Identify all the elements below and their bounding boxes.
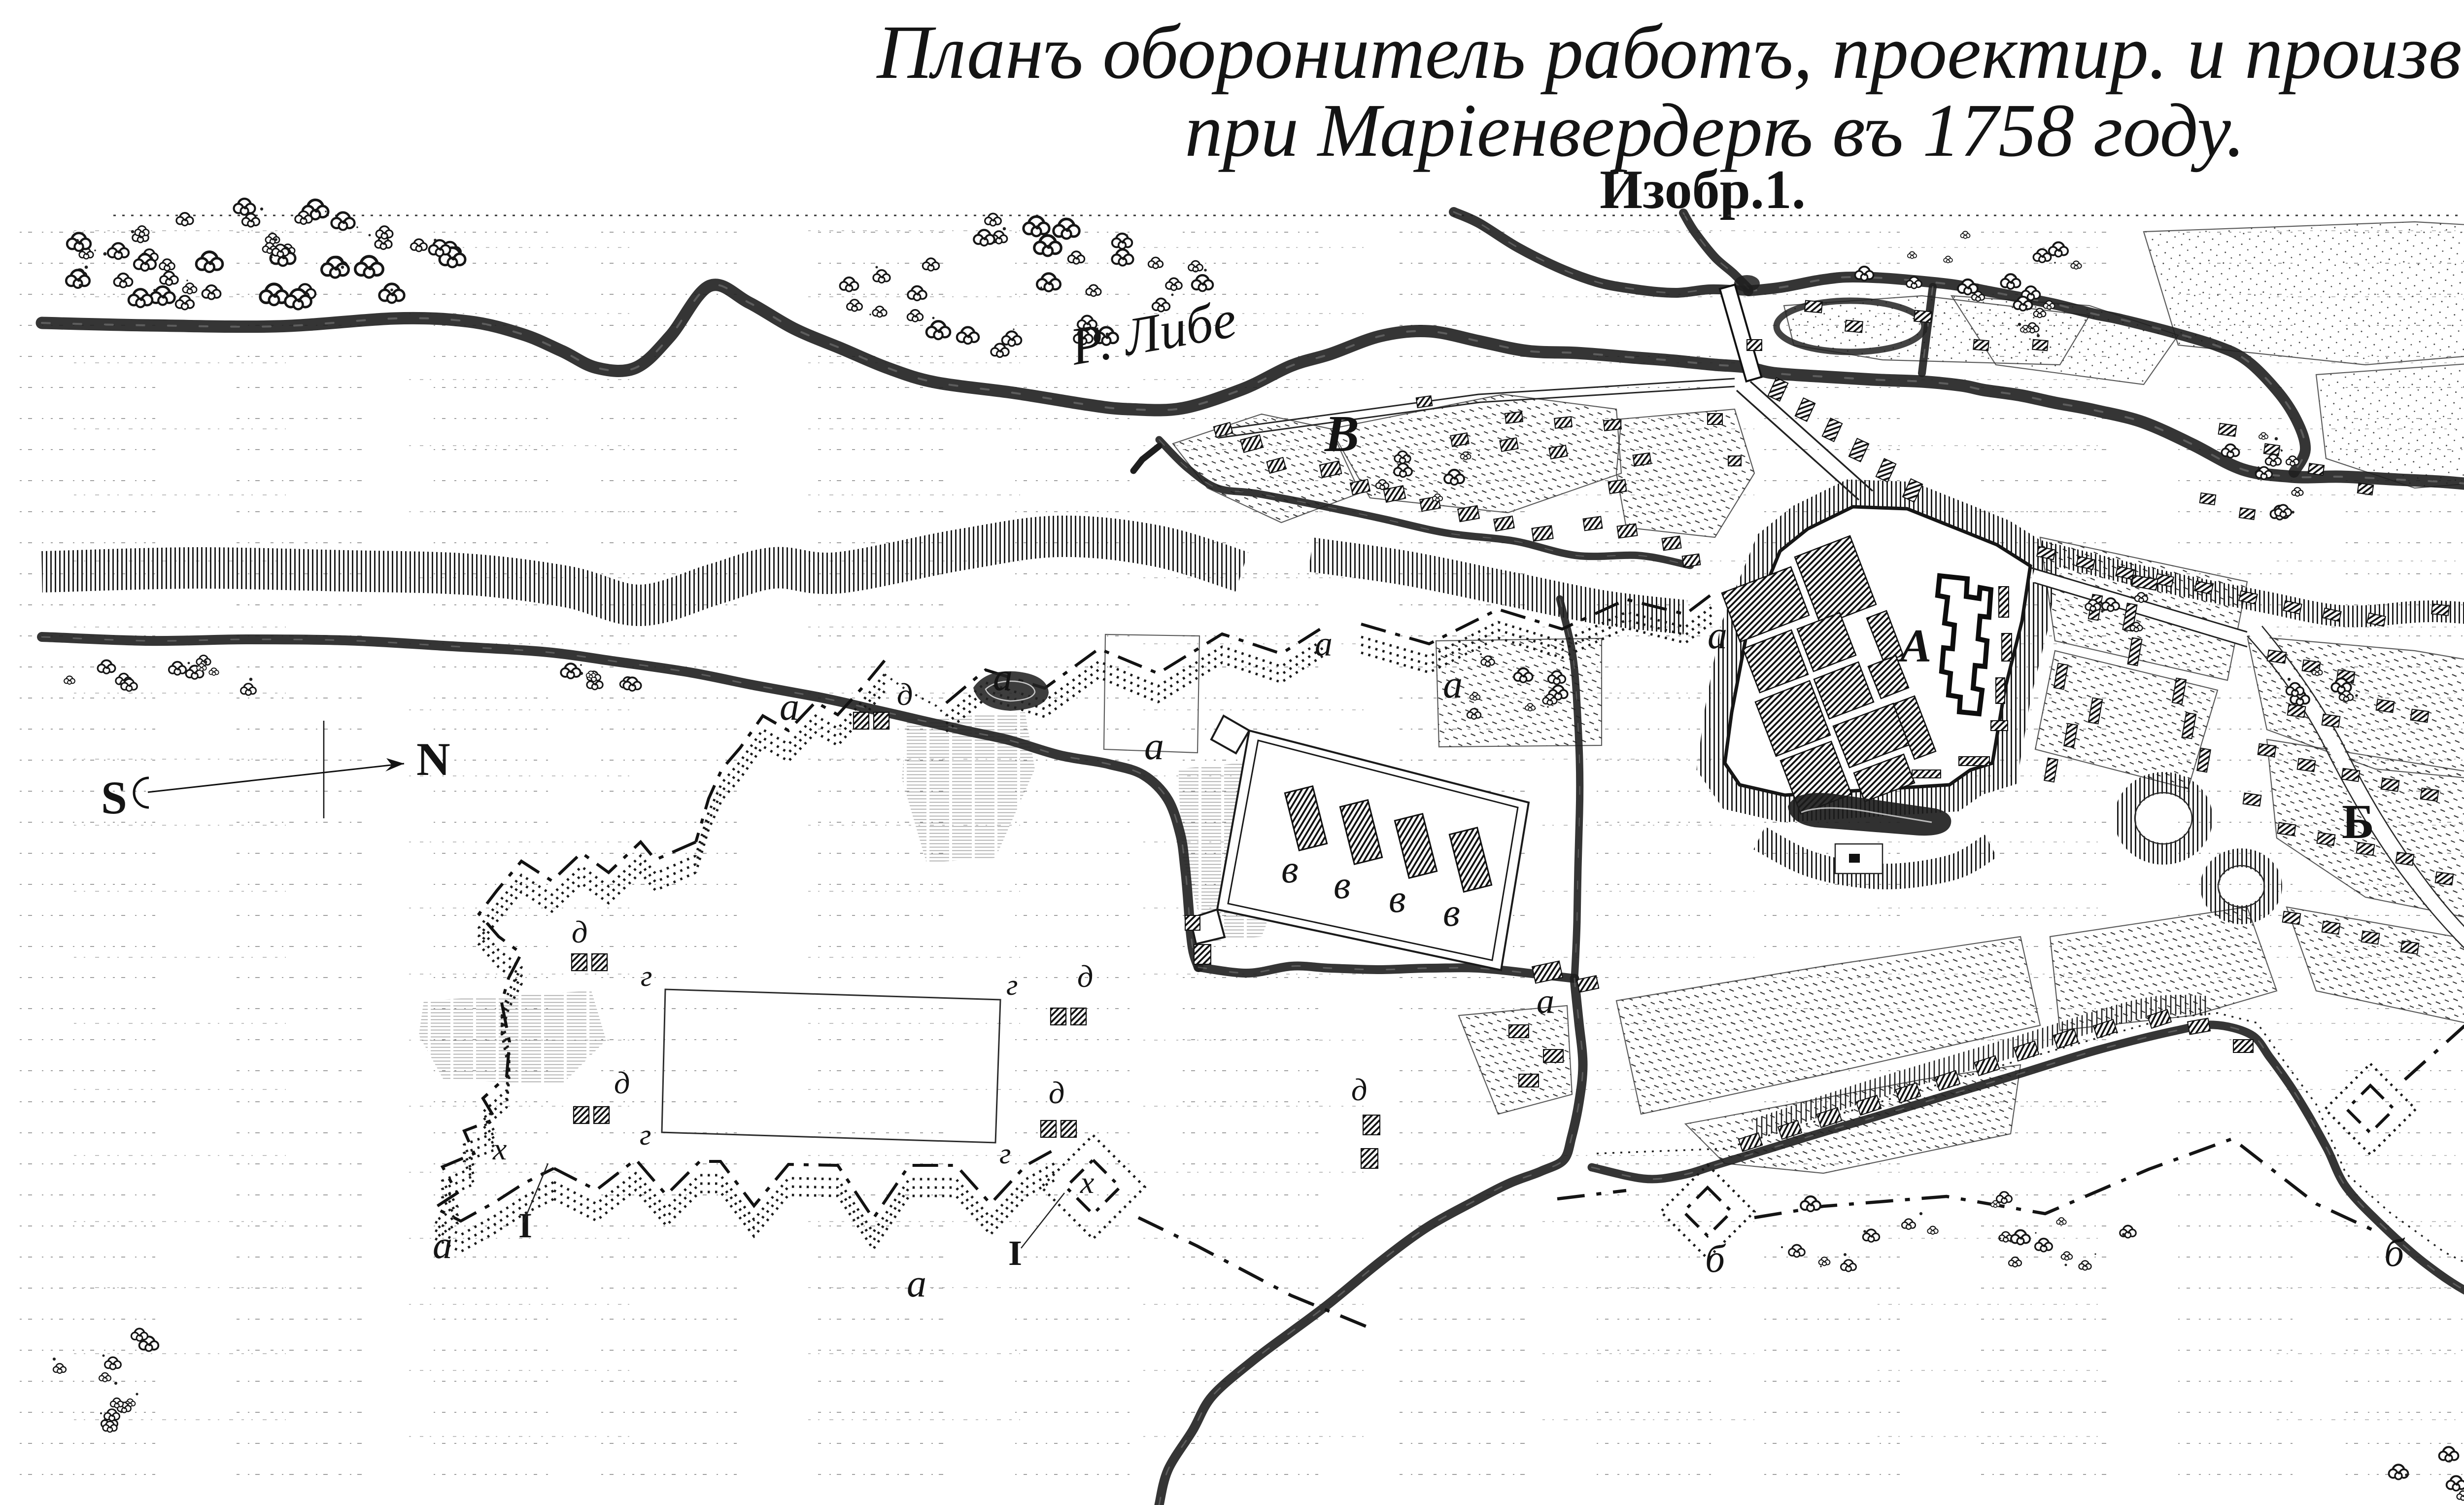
svg-text:д: д (1351, 1072, 1367, 1107)
svg-text:а: а (1537, 981, 1554, 1021)
svg-text:Планъ оборонитель работъ, прое: Планъ оборонитель работъ, проектир. и пр… (876, 9, 2464, 95)
svg-text:S: S (101, 771, 127, 824)
svg-text:а: а (1315, 624, 1333, 664)
svg-text:а: а (1708, 614, 1727, 657)
svg-text:г: г (999, 1137, 1011, 1170)
svg-text:д: д (614, 1065, 630, 1100)
svg-text:х: х (1080, 1165, 1094, 1200)
svg-text:д: д (1049, 1075, 1064, 1110)
svg-text:г: г (641, 960, 652, 992)
svg-text:х: х (492, 1131, 507, 1166)
svg-text:I: I (1008, 1233, 1022, 1273)
svg-text:д: д (572, 914, 587, 949)
svg-text:а: а (780, 685, 799, 729)
svg-text:д: д (897, 677, 913, 712)
svg-text:в: в (1281, 848, 1299, 891)
svg-text:а: а (993, 656, 1013, 699)
svg-text:д: д (1077, 959, 1093, 994)
svg-text:а: а (1144, 725, 1164, 768)
svg-text:а: а (907, 1262, 926, 1305)
svg-text:в: в (1389, 877, 1406, 921)
svg-text:N: N (416, 733, 450, 785)
svg-text:б: б (2384, 1231, 2405, 1275)
svg-text:а: а (1443, 663, 1463, 706)
svg-text:г: г (640, 1119, 651, 1151)
svg-text:I: I (518, 1206, 532, 1245)
svg-text:а: а (433, 1224, 452, 1267)
svg-text:б: б (1705, 1237, 1726, 1281)
svg-text:г: г (1006, 969, 1018, 1001)
svg-text:в: в (1334, 864, 1351, 907)
svg-text:В: В (1324, 405, 1359, 462)
svg-text:Б: Б (2342, 794, 2374, 849)
svg-text:в: в (1443, 891, 1460, 935)
svg-text:Изобр.1.: Изобр.1. (1600, 159, 1806, 220)
svg-text:А: А (1898, 620, 1931, 672)
